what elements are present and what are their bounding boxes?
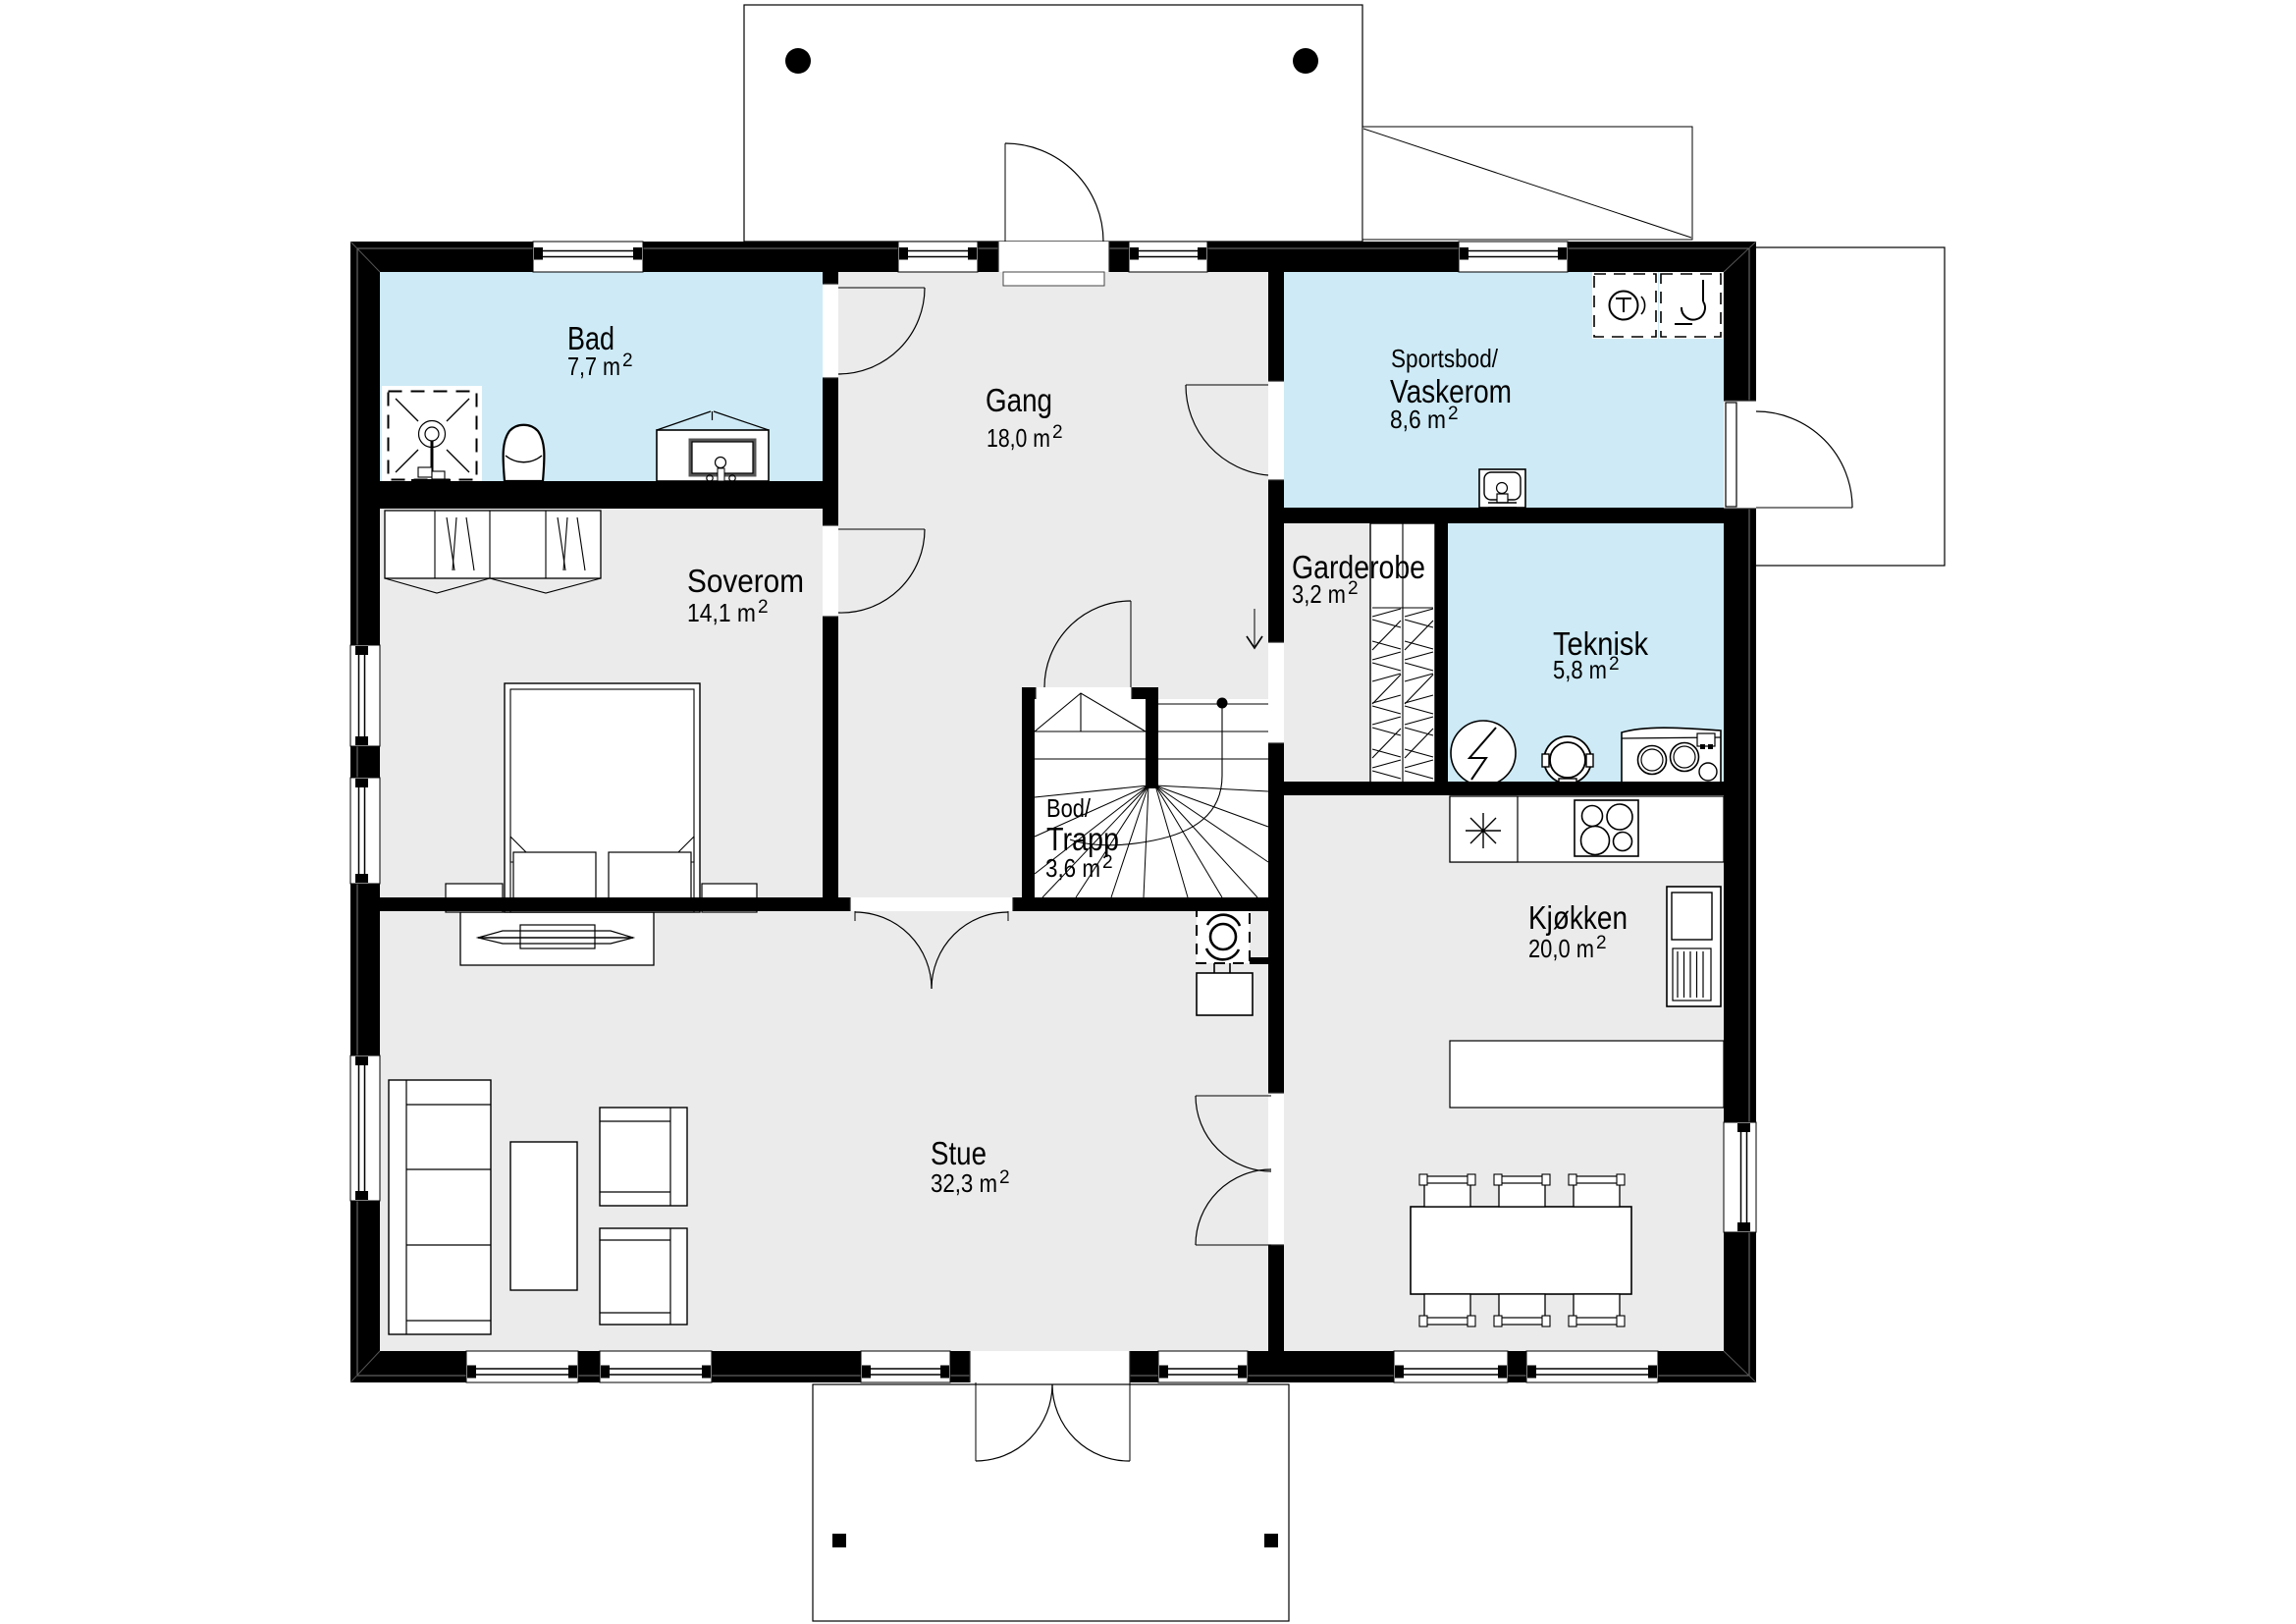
svg-text:3,6 m: 3,6 m — [1045, 853, 1100, 883]
svg-text:2: 2 — [1596, 933, 1607, 953]
svg-text:2: 2 — [758, 597, 769, 618]
svg-text:14,1 m: 14,1 m — [687, 598, 756, 627]
svg-text:Gang: Gang — [986, 382, 1052, 418]
svg-text:2: 2 — [1448, 404, 1459, 424]
svg-text:Kjøkken: Kjøkken — [1528, 899, 1628, 936]
svg-text:Soverom: Soverom — [687, 563, 804, 599]
svg-text:8,6 m: 8,6 m — [1390, 405, 1446, 434]
svg-text:20,0 m: 20,0 m — [1528, 934, 1594, 963]
svg-text:2: 2 — [1052, 422, 1063, 443]
svg-text:5,8 m: 5,8 m — [1553, 655, 1607, 684]
svg-text:2: 2 — [1348, 578, 1359, 599]
svg-text:2: 2 — [1102, 852, 1113, 873]
svg-text:2: 2 — [1609, 654, 1620, 675]
svg-text:32,3 m: 32,3 m — [931, 1168, 997, 1198]
svg-text:Stue: Stue — [931, 1135, 987, 1171]
svg-text:Sportsbod/: Sportsbod/ — [1391, 344, 1499, 373]
svg-text:2: 2 — [999, 1167, 1010, 1188]
svg-text:7,7 m: 7,7 m — [567, 352, 620, 381]
svg-text:18,0 m: 18,0 m — [987, 423, 1050, 453]
svg-text:3,2 m: 3,2 m — [1292, 579, 1346, 609]
svg-text:2: 2 — [622, 351, 633, 371]
svg-text:Bod/: Bod/ — [1046, 793, 1092, 823]
